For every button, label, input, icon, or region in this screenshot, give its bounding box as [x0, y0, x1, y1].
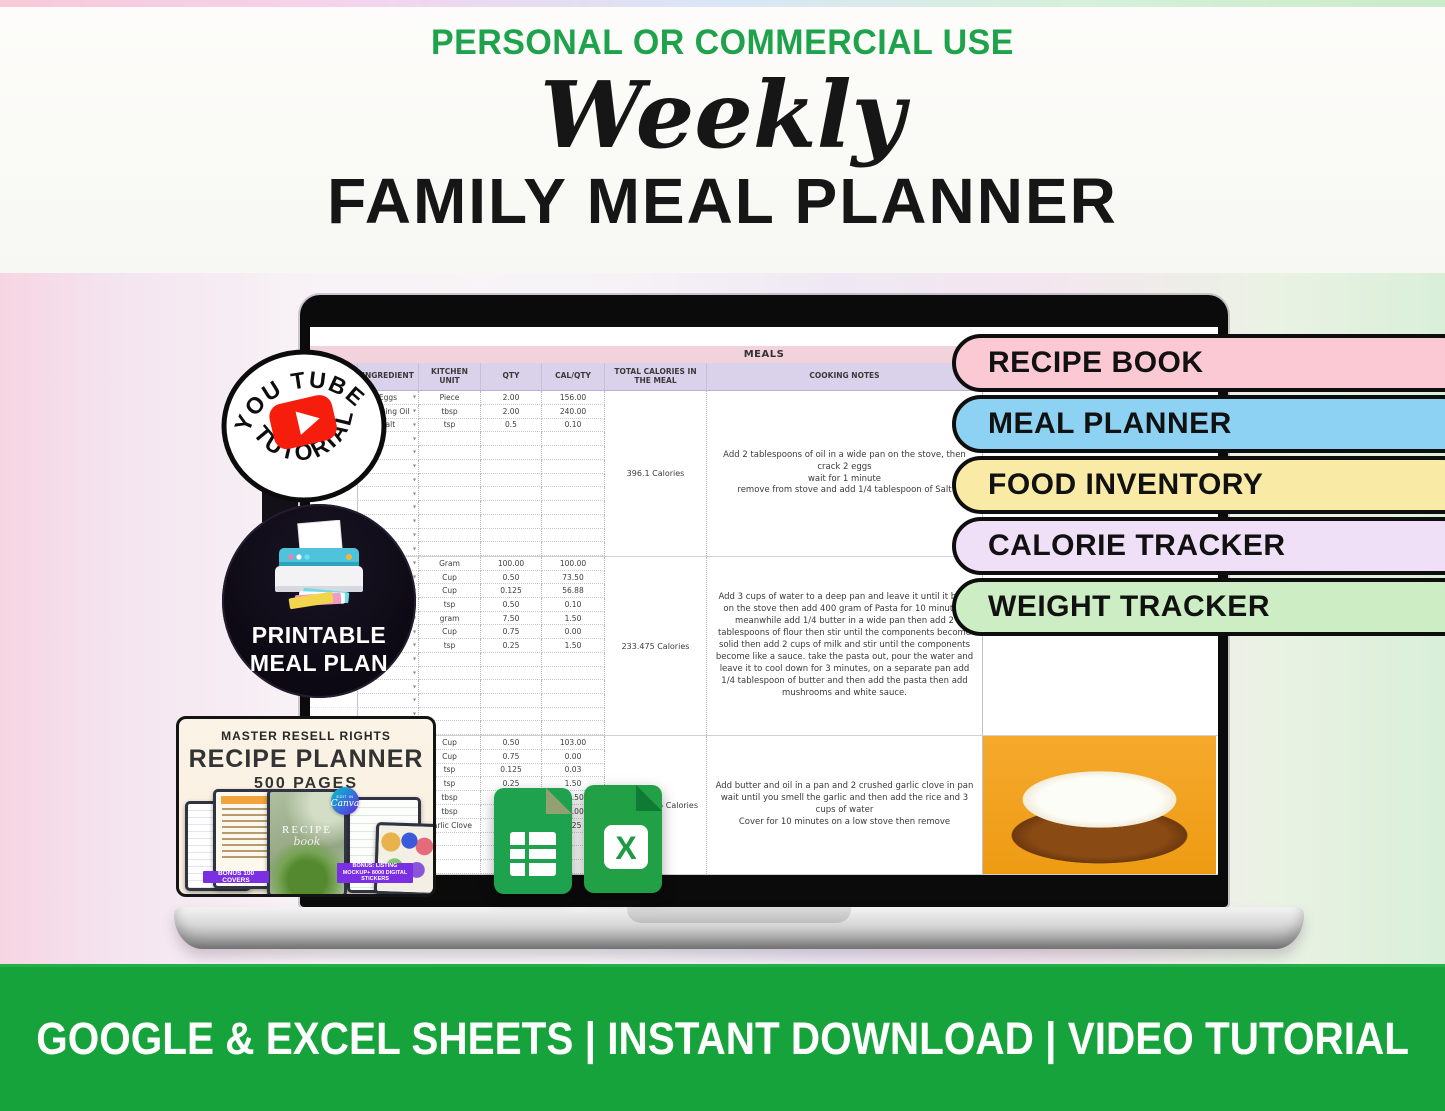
- feature-pill: FOOD INVENTORY: [952, 456, 1445, 514]
- cal-cell: 0.00: [542, 750, 605, 764]
- meal-block: ▾Cup0.50103.00▾Cup0.750.00▾tsp0.1250.03▾…: [310, 736, 1218, 875]
- qty-cell: 0.5: [481, 419, 542, 433]
- resell-card-title: RECIPE PLANNER: [179, 745, 433, 774]
- cal-cell: 0.03: [542, 764, 605, 778]
- cal-cell: 73.50: [542, 571, 605, 585]
- cal-cell: 56.88: [542, 584, 605, 598]
- unit-cell: [419, 446, 481, 460]
- cal-cell: [542, 529, 605, 543]
- printable-line2: MEAL PLAN: [222, 650, 416, 678]
- cal-cell: 0.10: [542, 419, 605, 433]
- footer-text: GOOGLE & EXCEL SHEETS | INSTANT DOWNLOAD…: [36, 1013, 1409, 1065]
- cal-cell: 156.00: [542, 391, 605, 405]
- dropdown-arrow-icon: ▾: [413, 408, 416, 415]
- qty-cell: [481, 474, 542, 488]
- laptop-base: [174, 907, 1304, 949]
- cal-cell: 1.50: [542, 639, 605, 653]
- unit-cell: tsp: [419, 639, 481, 653]
- canva-label: Canva: [331, 799, 360, 809]
- unit-cell: [419, 474, 481, 488]
- qty-cell: [481, 680, 542, 694]
- pastel-top-strip: [0, 0, 1445, 7]
- qty-cell: [481, 515, 542, 529]
- header-cell: COOKING NOTES: [707, 363, 983, 391]
- cal-cell: [542, 542, 605, 556]
- qty-cell: 0.50: [481, 736, 542, 750]
- canva-badge: EDIT IN Canva: [331, 787, 359, 815]
- eyebrow-text: PERSONAL OR COMMERCIAL USE: [431, 23, 1014, 63]
- page-title: FAMILY MEAL PLANNER: [327, 164, 1118, 238]
- unit-cell: Gram: [419, 557, 481, 571]
- unit-cell: [419, 501, 481, 515]
- cal-cell: 100.00: [542, 557, 605, 571]
- cal-cell: [542, 460, 605, 474]
- cal-cell: 0.00: [542, 625, 605, 639]
- dropdown-arrow-icon: ▾: [413, 504, 416, 511]
- cal-cell: [542, 487, 605, 501]
- bonus-banner-left: BONUS 100 COVERS: [203, 871, 269, 883]
- unit-cell: [419, 653, 481, 667]
- google-sheets-icon: [494, 788, 572, 899]
- feature-pill: RECIPE BOOK: [952, 334, 1445, 392]
- header-cell: QTY: [481, 363, 542, 391]
- cal-cell: [542, 680, 605, 694]
- youtube-badge-graphic: YOU TUBE TUTORIAL: [220, 348, 388, 504]
- svg-text:X: X: [615, 830, 637, 866]
- total-calories-cell: 396.1 Calories: [605, 391, 707, 556]
- ingredient-cell: ▾: [358, 694, 419, 708]
- qty-cell: 7.50: [481, 612, 542, 626]
- youtube-badge: YOU TUBE TUTORIAL: [220, 348, 388, 504]
- cal-cell: [542, 432, 605, 446]
- dropdown-arrow-icon: ▾: [413, 518, 416, 525]
- cal-cell: 0.10: [542, 598, 605, 612]
- cal-cell: 240.00: [542, 405, 605, 419]
- unit-cell: [419, 667, 481, 681]
- tablet-mockup: [374, 822, 436, 896]
- dropdown-arrow-icon: ▾: [413, 697, 416, 704]
- title-panel: PERSONAL OR COMMERCIAL USE Weekly FAMILY…: [0, 7, 1445, 273]
- qty-cell: 0.75: [481, 750, 542, 764]
- cal-cell: 103.00: [542, 736, 605, 750]
- cal-cell: [542, 501, 605, 515]
- resell-card: MASTER RESELL RIGHTS RECIPE PLANNER 500 …: [176, 716, 436, 897]
- script-title: Weekly: [540, 65, 905, 166]
- dropdown-arrow-icon: ▾: [413, 545, 416, 552]
- unit-cell: tbsp: [419, 405, 481, 419]
- table-row: ▾: [310, 694, 605, 708]
- header-cell: KITCHEN UNIT: [419, 363, 481, 391]
- unit-cell: [419, 515, 481, 529]
- pill-label: WEIGHT TRACKER: [988, 590, 1270, 624]
- qty-cell: 2.00: [481, 405, 542, 419]
- qty-cell: [481, 721, 542, 735]
- laptop-notch: [627, 907, 851, 923]
- unit-cell: Cup: [419, 584, 481, 598]
- dropdown-arrow-icon: ▾: [413, 435, 416, 442]
- dropdown-arrow-icon: ▾: [413, 449, 416, 456]
- printable-line1: PRINTABLE: [222, 622, 416, 650]
- rice-photo: [983, 736, 1216, 874]
- dropdown-arrow-icon: ▾: [413, 394, 416, 401]
- qty-cell: 2.00: [481, 391, 542, 405]
- unit-cell: gram: [419, 612, 481, 626]
- unit-cell: [419, 680, 481, 694]
- header-cell: TOTAL CALORIES IN THE MEAL: [605, 363, 707, 391]
- meal-photo-cell: [983, 736, 1216, 874]
- cal-cell: [542, 446, 605, 460]
- qty-cell: 0.75: [481, 625, 542, 639]
- cal-cell: [542, 667, 605, 681]
- cooking-notes-cell: Add butter and oil in a pan and 2 crushe…: [707, 736, 983, 874]
- cal-cell: [542, 515, 605, 529]
- resell-card-subtitle: MASTER RESELL RIGHTS: [179, 729, 433, 743]
- cal-cell: [542, 694, 605, 708]
- printable-badge-label: PRINTABLE MEAL PLAN: [222, 622, 416, 677]
- qty-cell: [481, 708, 542, 722]
- product-image: PERSONAL OR COMMERCIAL USE Weekly FAMILY…: [0, 0, 1445, 1111]
- qty-cell: [481, 542, 542, 556]
- unit-cell: [419, 487, 481, 501]
- cover-script: book: [270, 835, 344, 848]
- cal-cell: [542, 474, 605, 488]
- dropdown-arrow-icon: ▾: [413, 531, 416, 538]
- unit-cell: Piece: [419, 391, 481, 405]
- cooking-notes-cell: Add 2 tablespoons of oil in a wide pan o…: [707, 391, 983, 556]
- unit-cell: tsp: [419, 598, 481, 612]
- qty-cell: [481, 460, 542, 474]
- qty-cell: [481, 501, 542, 515]
- pill-label: RECIPE BOOK: [988, 346, 1204, 380]
- cal-cell: [542, 653, 605, 667]
- feature-pill: MEAL PLANNER: [952, 395, 1445, 453]
- dropdown-arrow-icon: ▾: [413, 421, 416, 428]
- qty-cell: [481, 529, 542, 543]
- unit-cell: Cup: [419, 625, 481, 639]
- qty-cell: [481, 667, 542, 681]
- pill-label: FOOD INVENTORY: [988, 468, 1263, 502]
- qty-cell: 0.125: [481, 584, 542, 598]
- footer-bar: GOOGLE & EXCEL SHEETS | INSTANT DOWNLOAD…: [0, 964, 1445, 1111]
- bonus-banner-right: BONUS: LISTING MOCKUP+ 8000 DIGITAL STIC…: [337, 863, 413, 883]
- qty-cell: [481, 432, 542, 446]
- printable-badge: PRINTABLE MEAL PLAN: [222, 504, 416, 698]
- dropdown-arrow-icon: ▾: [413, 490, 416, 497]
- qty-cell: 0.125: [481, 764, 542, 778]
- unit-cell: [419, 432, 481, 446]
- cooking-notes-cell: Add 3 cups of water to a deep pan and le…: [707, 557, 983, 735]
- total-calories-cell: 233.475 Calories: [605, 557, 707, 735]
- qty-cell: [481, 694, 542, 708]
- excel-icon: X: [584, 785, 662, 898]
- unit-cell: tsp: [419, 419, 481, 433]
- qty-cell: 0.25: [481, 639, 542, 653]
- dropdown-arrow-icon: ▾: [413, 560, 416, 567]
- cal-cell: 1.50: [542, 612, 605, 626]
- dropdown-arrow-icon: ▾: [413, 683, 416, 690]
- cal-cell: [542, 721, 605, 735]
- pill-label: MEAL PLANNER: [988, 407, 1232, 441]
- unit-cell: [419, 460, 481, 474]
- unit-cell: [419, 542, 481, 556]
- qty-cell: [481, 653, 542, 667]
- qty-cell: [481, 446, 542, 460]
- dropdown-arrow-icon: ▾: [413, 463, 416, 470]
- pill-label: CALORIE TRACKER: [988, 529, 1286, 563]
- qty-cell: 100.00: [481, 557, 542, 571]
- qty-cell: [481, 487, 542, 501]
- feature-pills: RECIPE BOOKMEAL PLANNERFOOD INVENTORYCAL…: [952, 334, 1445, 639]
- feature-pill: CALORIE TRACKER: [952, 517, 1445, 575]
- unit-cell: [419, 529, 481, 543]
- unit-cell: Cup: [419, 571, 481, 585]
- unit-cell: [419, 694, 481, 708]
- feature-pill: WEIGHT TRACKER: [952, 578, 1445, 636]
- header-cell: CAL/QTY: [542, 363, 605, 391]
- qty-cell: 0.50: [481, 571, 542, 585]
- qty-cell: 0.50: [481, 598, 542, 612]
- dropdown-arrow-icon: ▾: [413, 476, 416, 483]
- printer-icon: [259, 520, 379, 616]
- cal-cell: [542, 708, 605, 722]
